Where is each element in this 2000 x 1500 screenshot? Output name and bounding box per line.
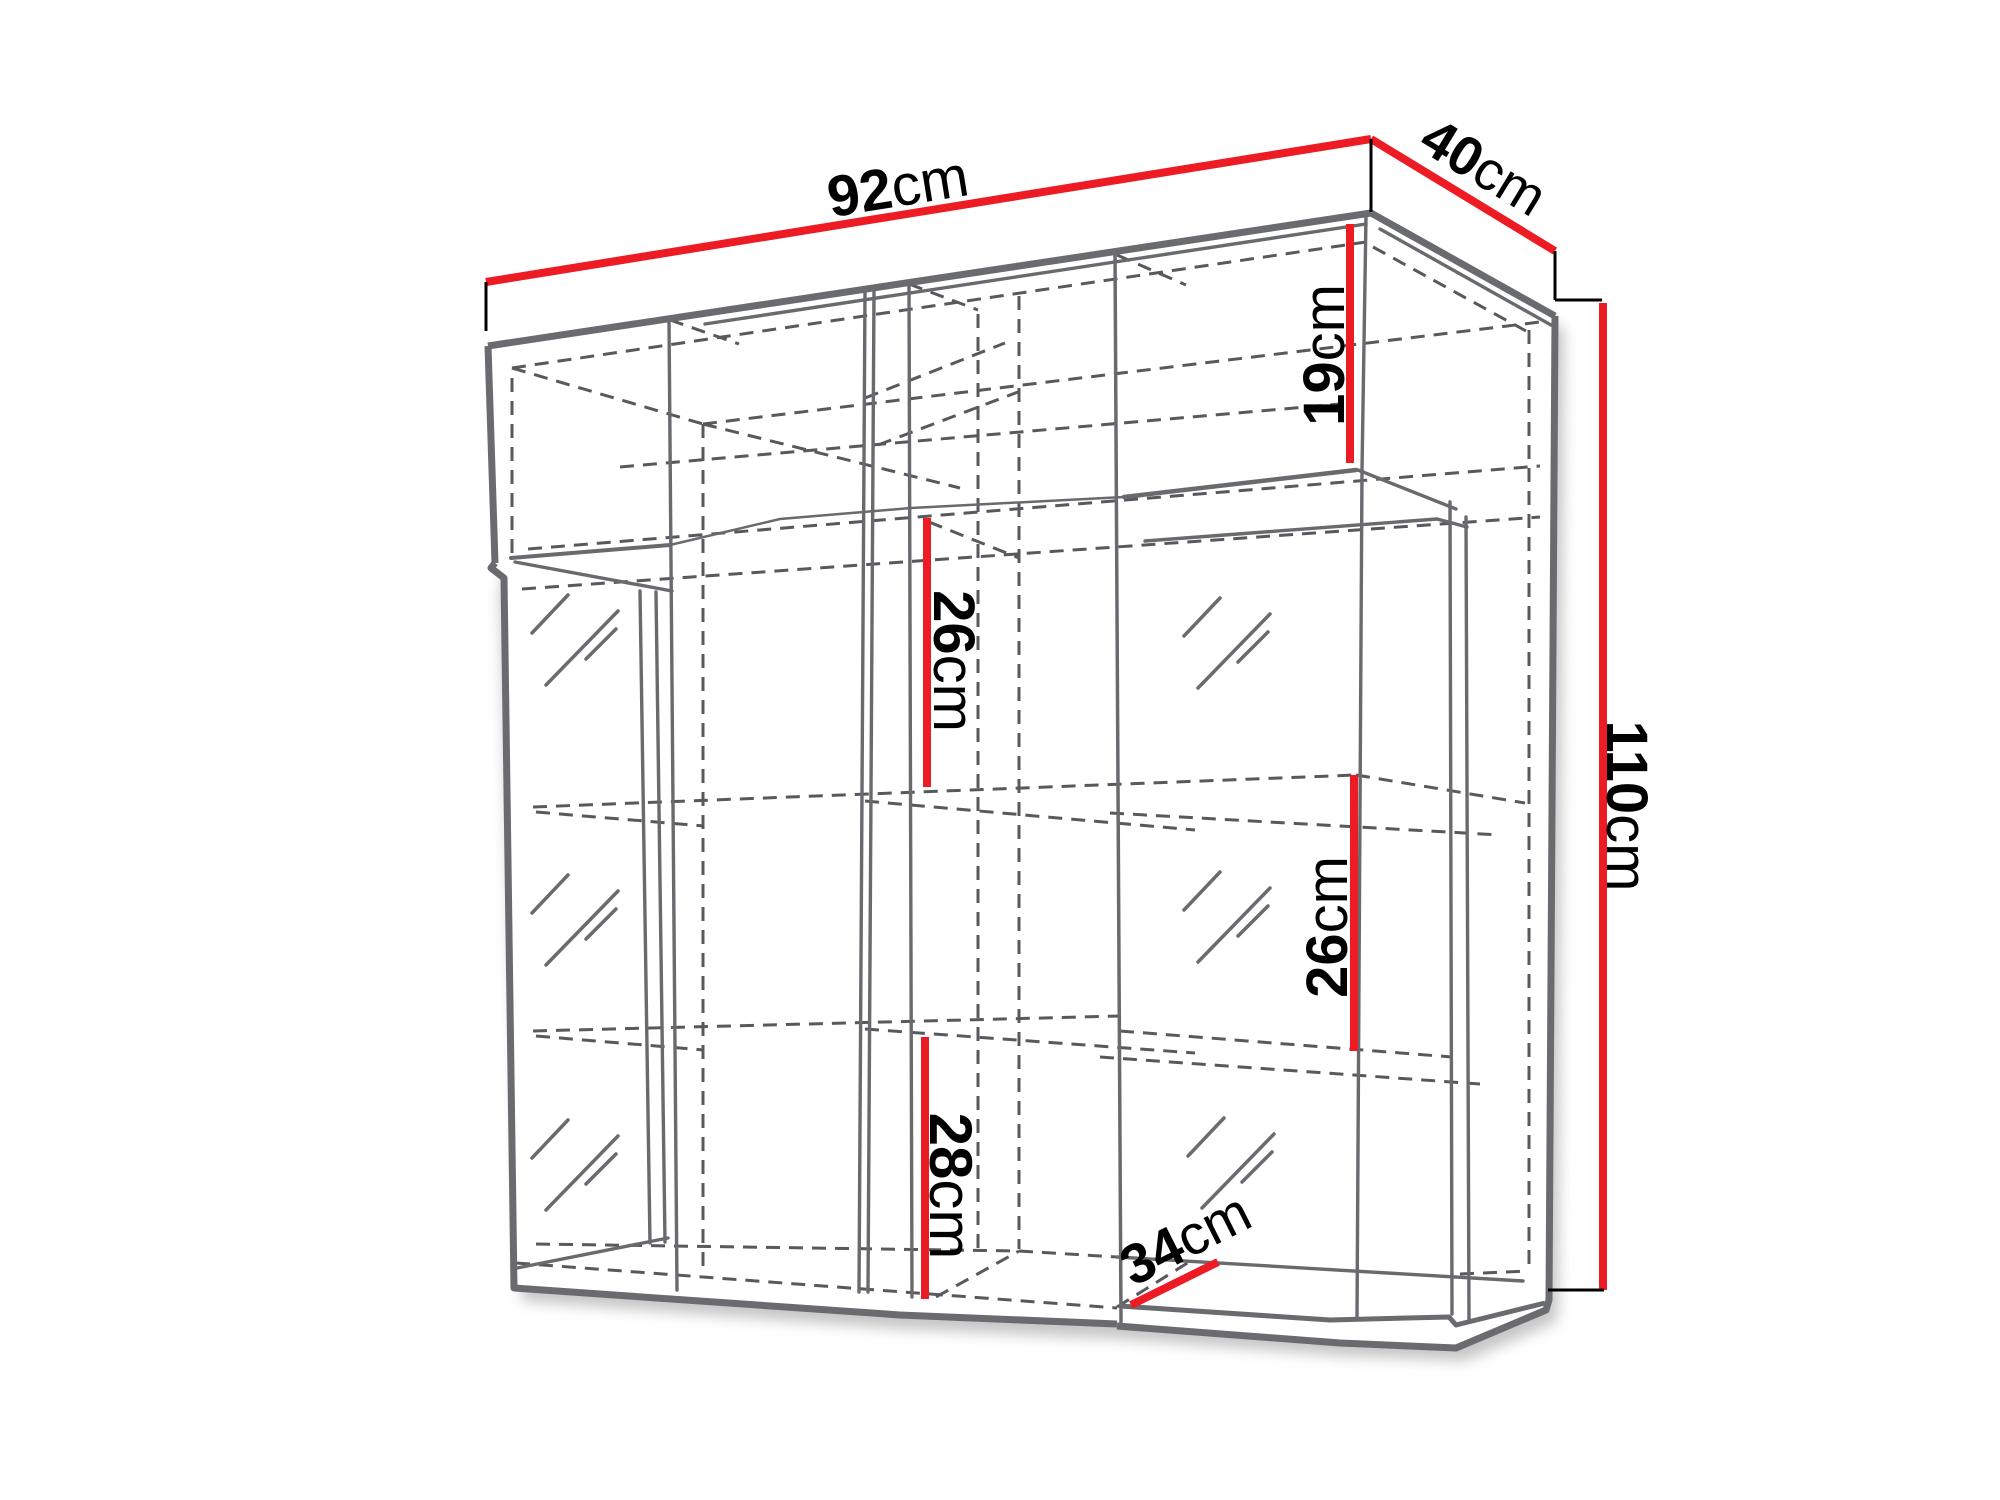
svg-text:26cm: 26cm (1295, 856, 1360, 998)
svg-text:26cm: 26cm (921, 590, 986, 732)
svg-text:19cm: 19cm (1292, 284, 1357, 426)
svg-text:110cm: 110cm (1594, 721, 1659, 892)
svg-text:28cm: 28cm (917, 1113, 984, 1260)
